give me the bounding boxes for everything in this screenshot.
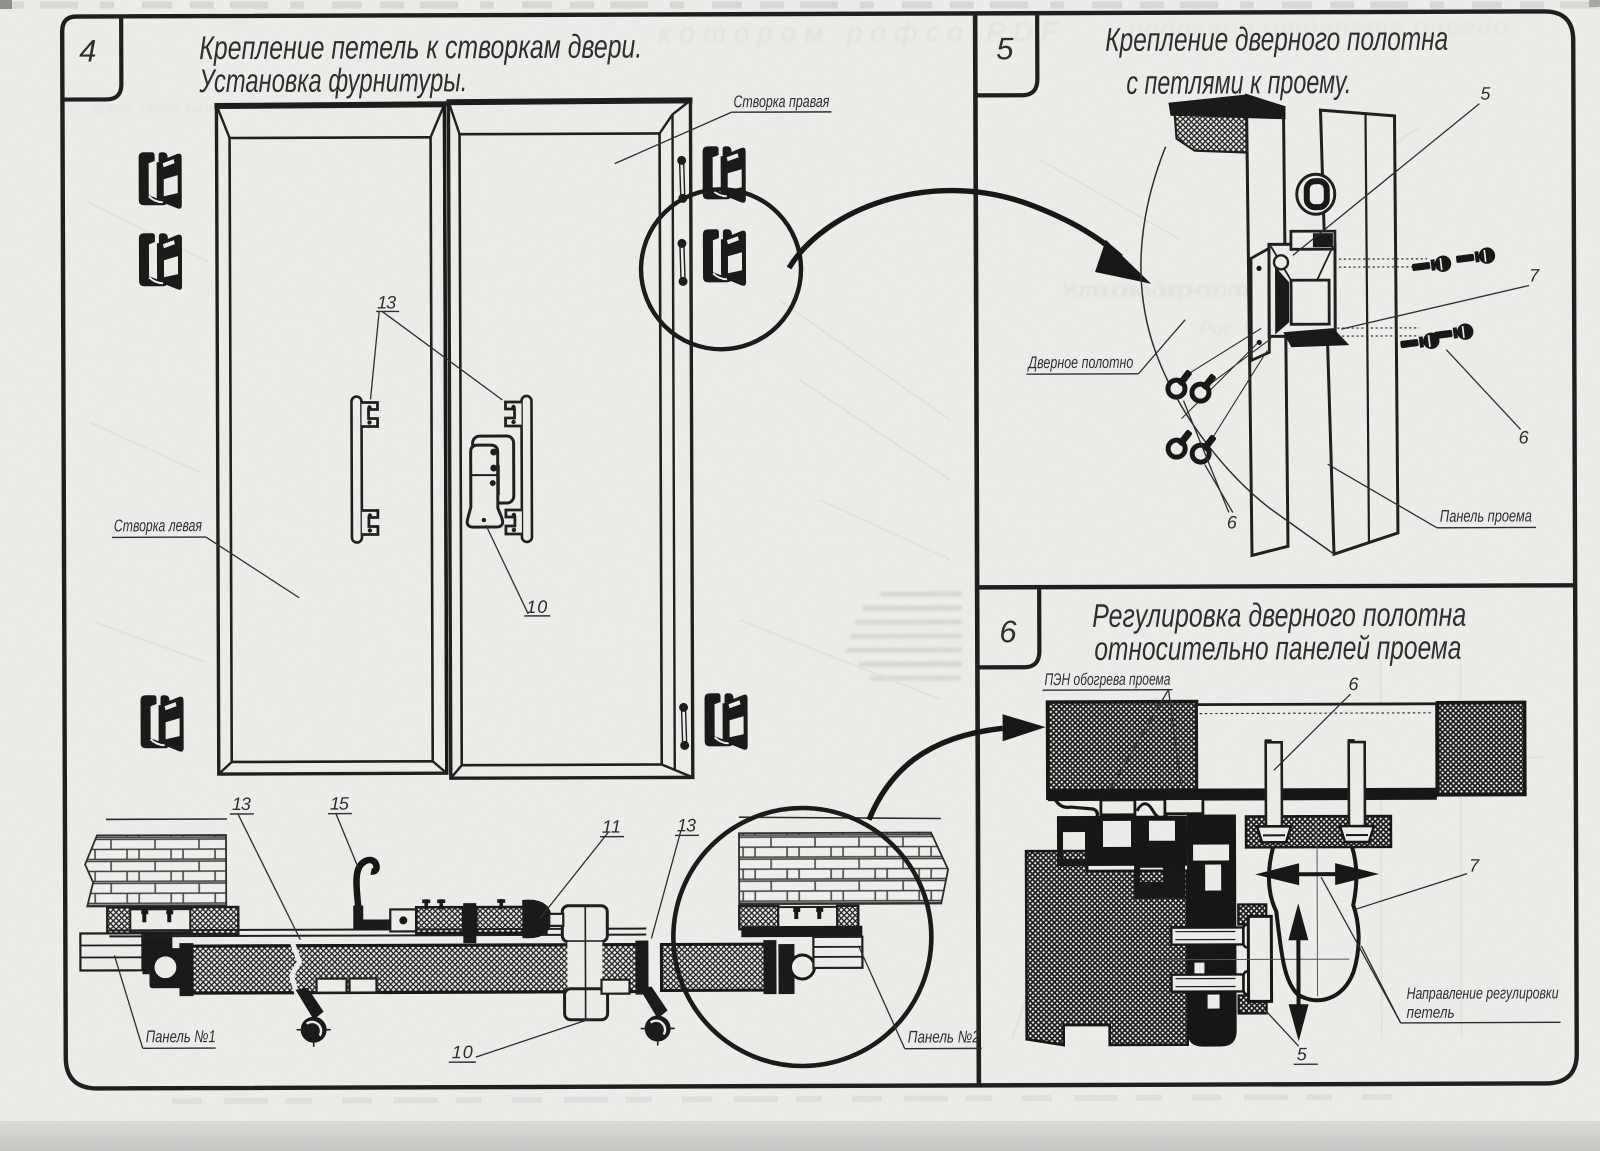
svg-text:6: 6 [1519, 427, 1530, 447]
svg-text:10: 10 [452, 1042, 473, 1062]
svg-text:ПЭН обогрева проема: ПЭН обогрева проема [1044, 670, 1170, 689]
svg-text:13: 13 [377, 292, 396, 312]
svg-text:5: 5 [1480, 84, 1491, 104]
svg-text:Панель №1: Панель №1 [146, 1027, 216, 1046]
svg-text:15: 15 [330, 794, 350, 814]
svg-text:Створка левая: Створка левая [114, 516, 202, 535]
svg-text:13: 13 [232, 794, 251, 814]
svg-text:Створка правая: Створка правая [733, 92, 829, 111]
svg-text:Направление регулировки: Направление регулировки [1407, 984, 1559, 1003]
svg-text:с петлями к проему.: с петлями к проему. [1126, 63, 1351, 101]
svg-text:Крепление петель к створкам дв: Крепление петель к створкам двери. [199, 28, 642, 67]
svg-text:петель: петель [1407, 1004, 1455, 1022]
svg-text:Панель №2: Панель №2 [908, 1027, 980, 1046]
svg-text:7: 7 [1529, 265, 1540, 285]
svg-text:6: 6 [1227, 512, 1238, 532]
svg-text:5: 5 [1297, 1044, 1308, 1064]
svg-text:Крепление дверного полотна: Крепление дверного полотна [1105, 20, 1448, 58]
svg-text:7: 7 [1469, 856, 1480, 876]
svg-text:6: 6 [999, 614, 1017, 649]
svg-text:11: 11 [602, 817, 621, 837]
svg-text:6: 6 [1348, 674, 1359, 694]
svg-text:Установка фурнитуры.: Установка фурнитуры. [199, 61, 468, 99]
svg-text:10: 10 [526, 597, 547, 617]
svg-text:относительно панелей проема: относительно панелей проема [1094, 629, 1461, 667]
svg-text:4: 4 [79, 33, 96, 68]
svg-text:5: 5 [996, 31, 1014, 66]
svg-text:Панель проема: Панель проема [1440, 506, 1532, 525]
svg-text:Дверное полотно: Дверное полотно [1027, 353, 1134, 372]
